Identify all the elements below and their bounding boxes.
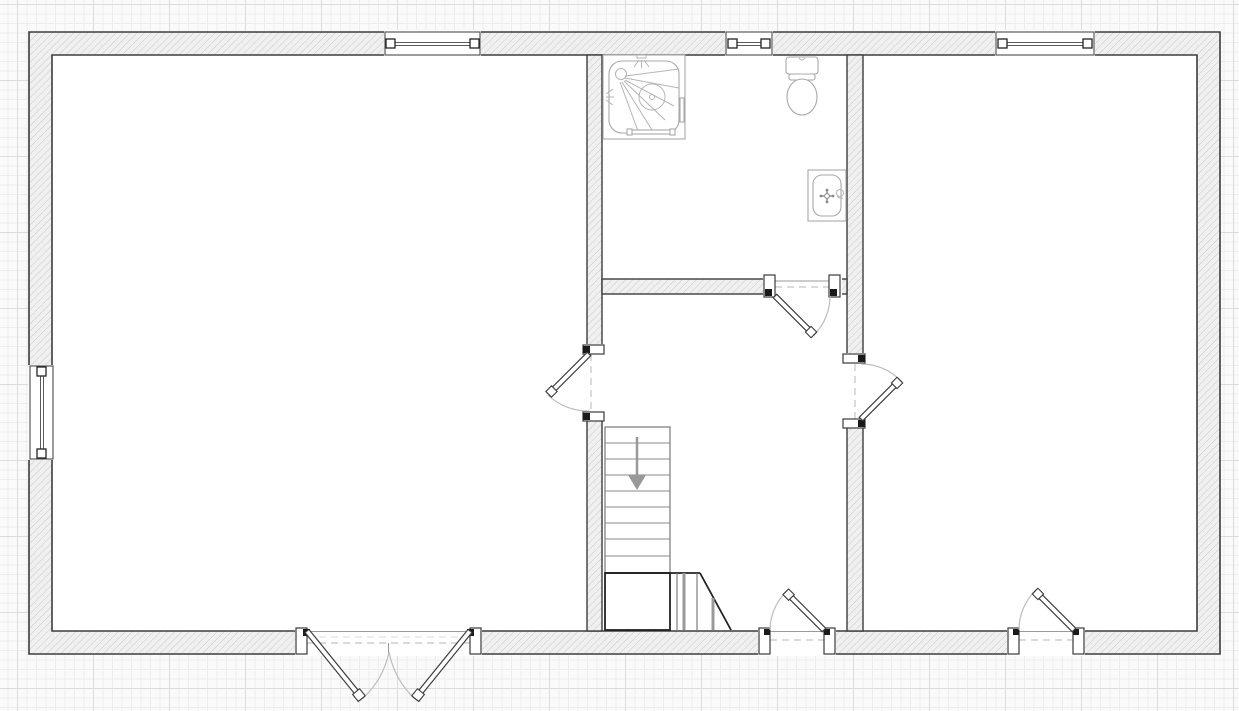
hinge-marker xyxy=(583,413,590,420)
window-stop xyxy=(728,39,737,48)
window-frame xyxy=(30,366,53,459)
handle-cap xyxy=(627,129,632,135)
window-frame xyxy=(385,32,480,55)
window-stop xyxy=(1083,39,1092,48)
shower-side-handle xyxy=(680,98,684,122)
hinge-marker xyxy=(765,289,772,296)
sink-icon[interactable] xyxy=(808,170,846,221)
hinge-marker xyxy=(583,346,590,353)
window-stop xyxy=(998,39,1007,48)
window-north-right-room[interactable] xyxy=(996,32,1094,55)
window-stop xyxy=(386,39,395,48)
window-north-bathroom[interactable] xyxy=(726,32,772,55)
door-swing-arc xyxy=(389,652,415,699)
interior-wall-right[interactable] xyxy=(847,55,863,631)
interior-wall-left[interactable] xyxy=(587,55,602,631)
drawing-canvas[interactable] xyxy=(0,0,1239,711)
shower-tray xyxy=(609,61,679,133)
window-stop xyxy=(37,367,46,376)
window-stop xyxy=(470,39,479,48)
window-west-left-room[interactable] xyxy=(30,366,53,459)
shower-door-handle xyxy=(630,130,672,134)
handle-cap xyxy=(670,129,675,135)
hinge-marker xyxy=(858,355,865,362)
toilet-icon[interactable] xyxy=(786,57,818,115)
window-frame xyxy=(996,32,1094,55)
hinge-marker xyxy=(764,629,770,635)
window-stop xyxy=(37,449,46,458)
shower-icon[interactable] xyxy=(603,55,685,139)
door-swing-arc xyxy=(362,652,389,699)
floor-plan xyxy=(0,0,1239,711)
toilet-bowl xyxy=(787,79,817,115)
hinge-marker xyxy=(830,289,837,296)
window-stop xyxy=(761,39,770,48)
hinge-marker xyxy=(858,420,865,427)
hinge-marker xyxy=(1013,629,1019,635)
window-north-left-room[interactable] xyxy=(385,32,480,55)
